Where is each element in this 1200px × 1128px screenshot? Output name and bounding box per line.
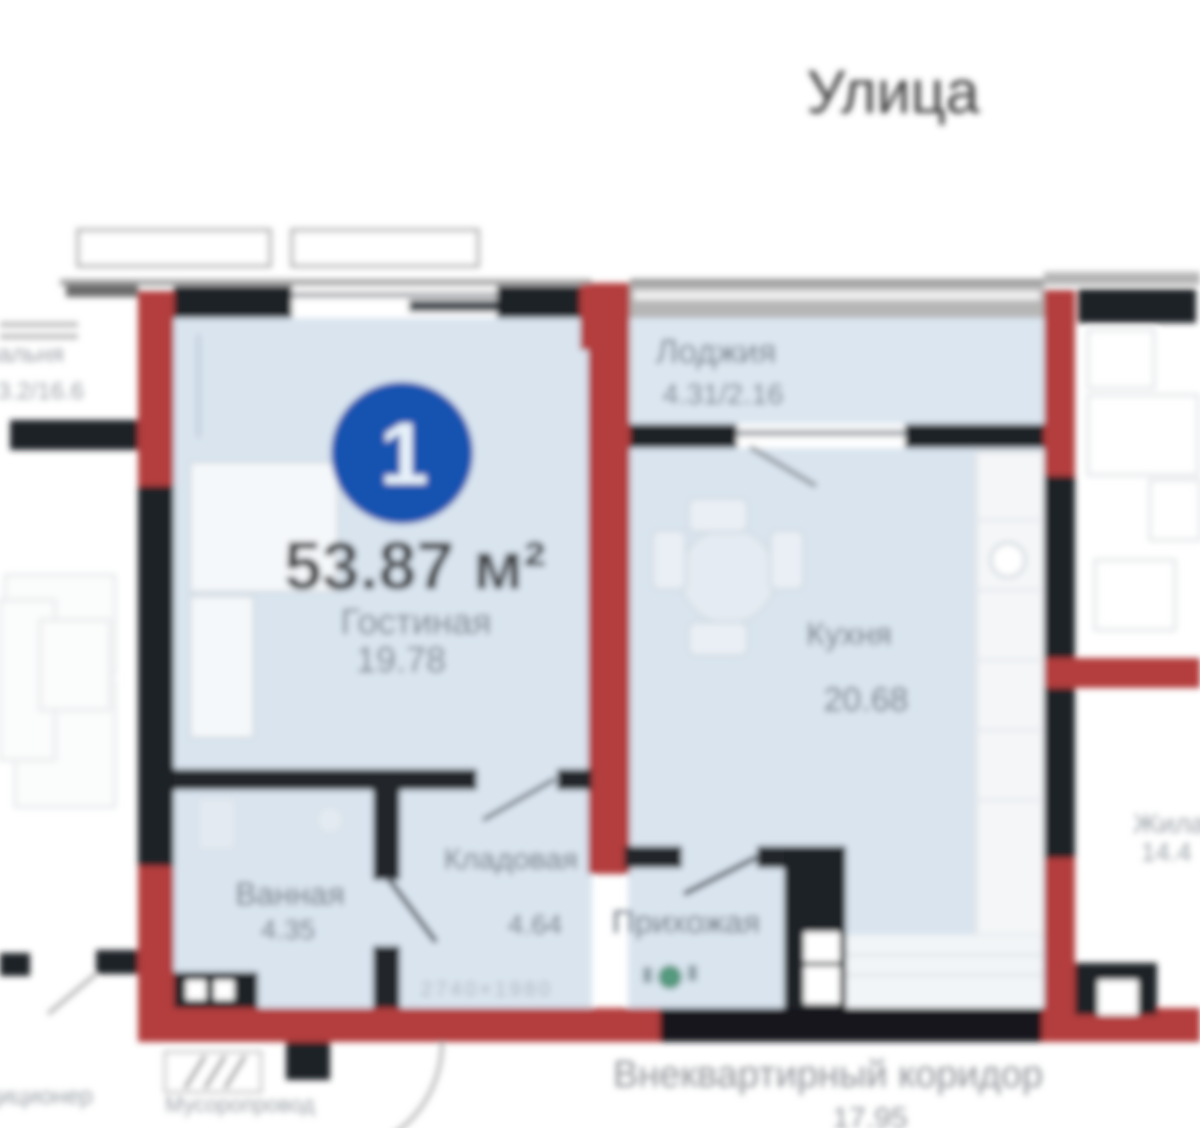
svg-text:Лоджия: Лоджия [656,333,776,371]
svg-text:Улица: Улица [806,58,979,126]
svg-text:Внеквартирный коридор: Внеквартирный коридор [613,1054,1043,1096]
svg-text:4.64: 4.64 [508,909,563,940]
svg-text:Гостиная: Гостиная [340,601,491,642]
svg-text:Мусоропровод: Мусоропровод [165,1092,315,1117]
svg-text:17.95: 17.95 [832,1102,907,1128]
svg-text:Кладовая: Кладовая [444,843,578,876]
svg-text:4.35: 4.35 [261,914,316,945]
svg-text:19.78: 19.78 [356,639,446,680]
svg-text:4.31/2.16: 4.31/2.16 [663,379,784,411]
svg-text:Кондиционер: Кондиционер [0,1083,93,1110]
svg-text:20.68: 20.68 [823,681,908,719]
svg-text:Спальня: Спальня [0,341,64,368]
svg-text:Жилая: Жилая [1133,808,1200,839]
svg-text:3.2/16.6: 3.2/16.6 [0,378,84,405]
svg-text:2740×1980: 2740×1980 [421,978,554,1001]
svg-text:Ванная: Ванная [235,876,345,912]
svg-text:Кухня: Кухня [806,616,892,652]
svg-text:53.87 м²: 53.87 м² [284,528,546,604]
svg-text:14.4: 14.4 [1141,837,1192,867]
svg-text:1: 1 [380,404,429,503]
svg-text:Прихожая: Прихожая [612,904,760,940]
